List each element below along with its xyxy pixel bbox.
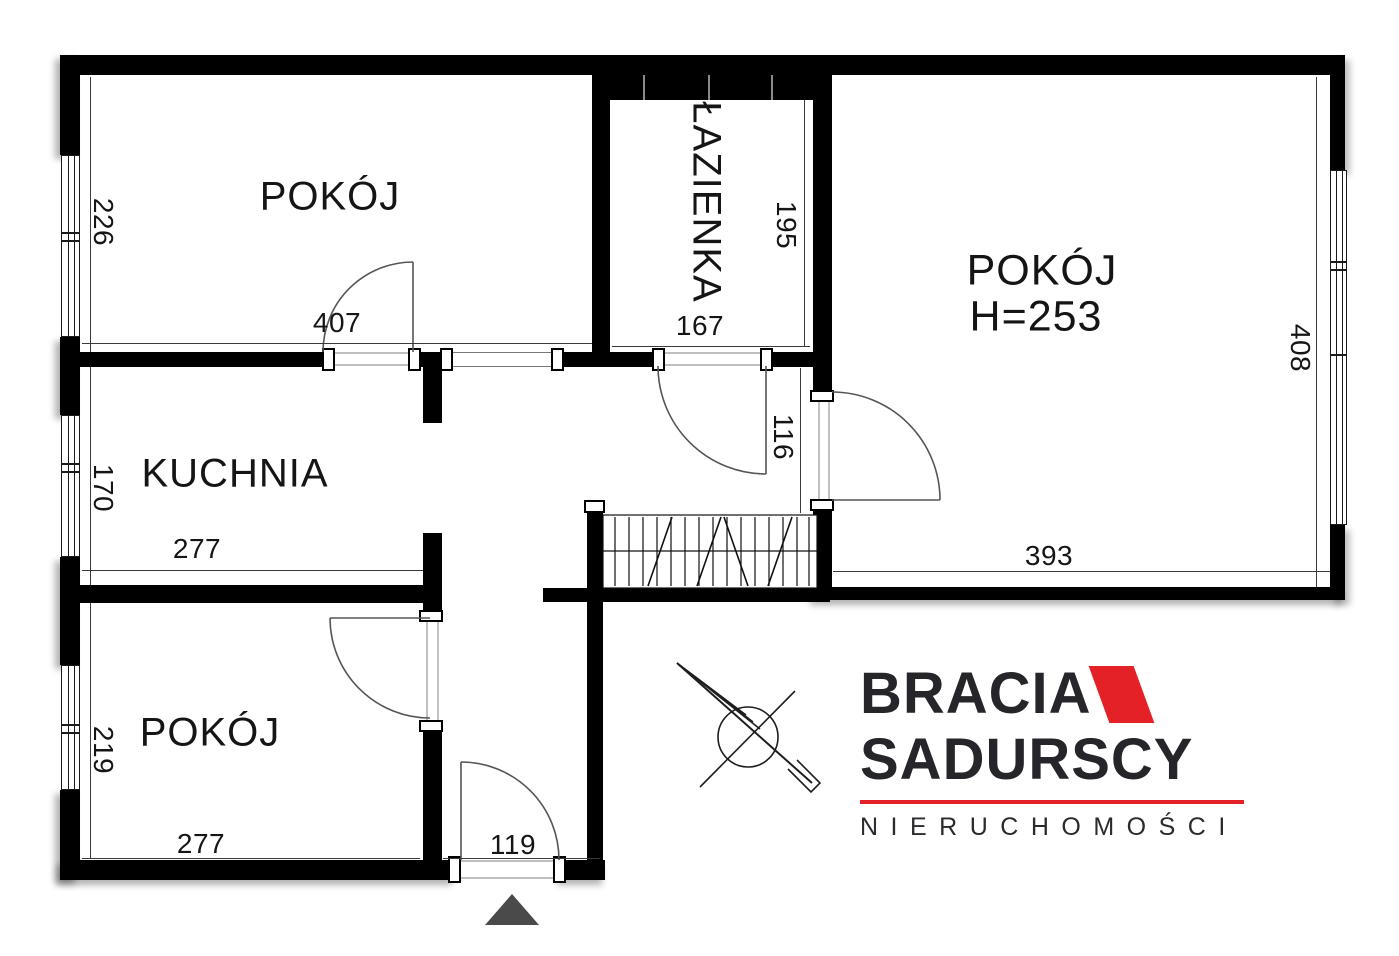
window-kitchen xyxy=(61,415,80,557)
wall-bathroom-bottom xyxy=(766,352,813,367)
dimension-line xyxy=(833,571,1330,572)
dimension-line xyxy=(82,858,420,859)
wall-left xyxy=(60,337,80,415)
wall-hallway-right xyxy=(587,513,603,860)
dim-label: 116 xyxy=(767,414,799,460)
door-bathroom xyxy=(658,366,766,474)
door-jamb xyxy=(448,856,461,883)
opening-hall-top-room xyxy=(447,352,557,367)
wall-right xyxy=(1330,55,1345,170)
dimension-line xyxy=(82,343,592,344)
door-room-bottom-left xyxy=(330,618,430,718)
wall-kitchen-right xyxy=(423,533,442,617)
room-label-bathroom: ŁAZIENKA xyxy=(684,101,729,302)
wall-kitchen-bottom xyxy=(80,585,423,603)
dimension-line xyxy=(82,570,423,571)
wall-interior xyxy=(80,352,332,367)
room-label-right: POKÓJ xyxy=(967,247,1118,296)
floor-plan: POKÓJ 407 226 ŁAZIENKA 167 195 POKÓJ H=2… xyxy=(0,0,1399,956)
door-jamb xyxy=(419,610,443,622)
door-jamb xyxy=(760,348,773,371)
ventilation-shaft xyxy=(601,75,818,100)
dim-label: 167 xyxy=(676,310,724,342)
wall-top xyxy=(60,55,1345,75)
room-label-bottom-left: POKÓJ xyxy=(140,711,281,756)
dimension-line xyxy=(1316,77,1317,587)
door-jamb xyxy=(322,348,335,371)
company-logo: BRACIA SADURSCY NIERUCHOMOŚCI xyxy=(860,665,1280,842)
dim-label: 277 xyxy=(177,828,225,860)
door-jamb xyxy=(408,348,421,371)
dim-label: 226 xyxy=(87,198,119,246)
logo-mark-icon xyxy=(1088,666,1154,723)
room-label-kitchen: KUCHNIA xyxy=(141,452,328,497)
dim-label: 119 xyxy=(490,829,536,861)
door-jamb xyxy=(553,856,566,883)
ceiling-height-label: H=253 xyxy=(970,293,1103,342)
dim-label: 195 xyxy=(770,201,802,249)
dim-label: 170 xyxy=(87,464,119,512)
door-room-right xyxy=(832,392,940,500)
wall-bottom xyxy=(560,860,605,880)
window-room-right xyxy=(1330,170,1347,525)
wall-left xyxy=(60,557,80,665)
window-room-bottom-left xyxy=(61,665,80,790)
dim-label: 407 xyxy=(313,307,361,339)
logo-name-line2: SADURSCY xyxy=(860,731,1280,789)
entrance-arrow-icon xyxy=(485,894,539,925)
door-jamb xyxy=(551,348,564,371)
dim-label: 393 xyxy=(1025,540,1073,572)
door-jamb xyxy=(419,720,443,732)
dim-label: 219 xyxy=(87,726,119,774)
dim-label: 277 xyxy=(173,533,221,565)
wall-interior xyxy=(557,352,612,367)
shaft-divider xyxy=(643,75,645,100)
logo-name-line1: BRACIA xyxy=(860,665,1092,723)
wall-kitchen-right xyxy=(423,367,442,423)
dimension-line xyxy=(800,368,801,513)
door-jamb xyxy=(440,348,453,371)
logo-tagline: NIERUCHOMOŚCI xyxy=(860,813,1280,842)
wardrobe-symbol xyxy=(603,515,817,588)
door-jamb xyxy=(584,500,605,513)
wall-kitchen-right xyxy=(423,725,442,860)
door-jamb xyxy=(652,348,665,371)
door-jamb xyxy=(810,499,834,511)
wall-room-right-bottom xyxy=(813,587,1345,600)
wall-bottom xyxy=(60,860,455,880)
door-frame-lines xyxy=(335,353,829,878)
wall-bathroom-left xyxy=(592,75,610,352)
dimension-line xyxy=(804,100,805,346)
room-label-top-left: POKÓJ xyxy=(260,175,401,220)
wall-left xyxy=(60,55,80,155)
dimension-line xyxy=(612,346,810,347)
shaft-divider xyxy=(708,75,710,100)
logo-divider xyxy=(860,800,1244,804)
shaft-divider xyxy=(771,75,773,100)
dim-label: 408 xyxy=(1284,324,1316,372)
door-jamb xyxy=(810,390,834,402)
wall-room-right-left xyxy=(813,55,832,397)
window-room-top-left xyxy=(61,155,80,337)
north-compass-icon xyxy=(677,663,820,792)
